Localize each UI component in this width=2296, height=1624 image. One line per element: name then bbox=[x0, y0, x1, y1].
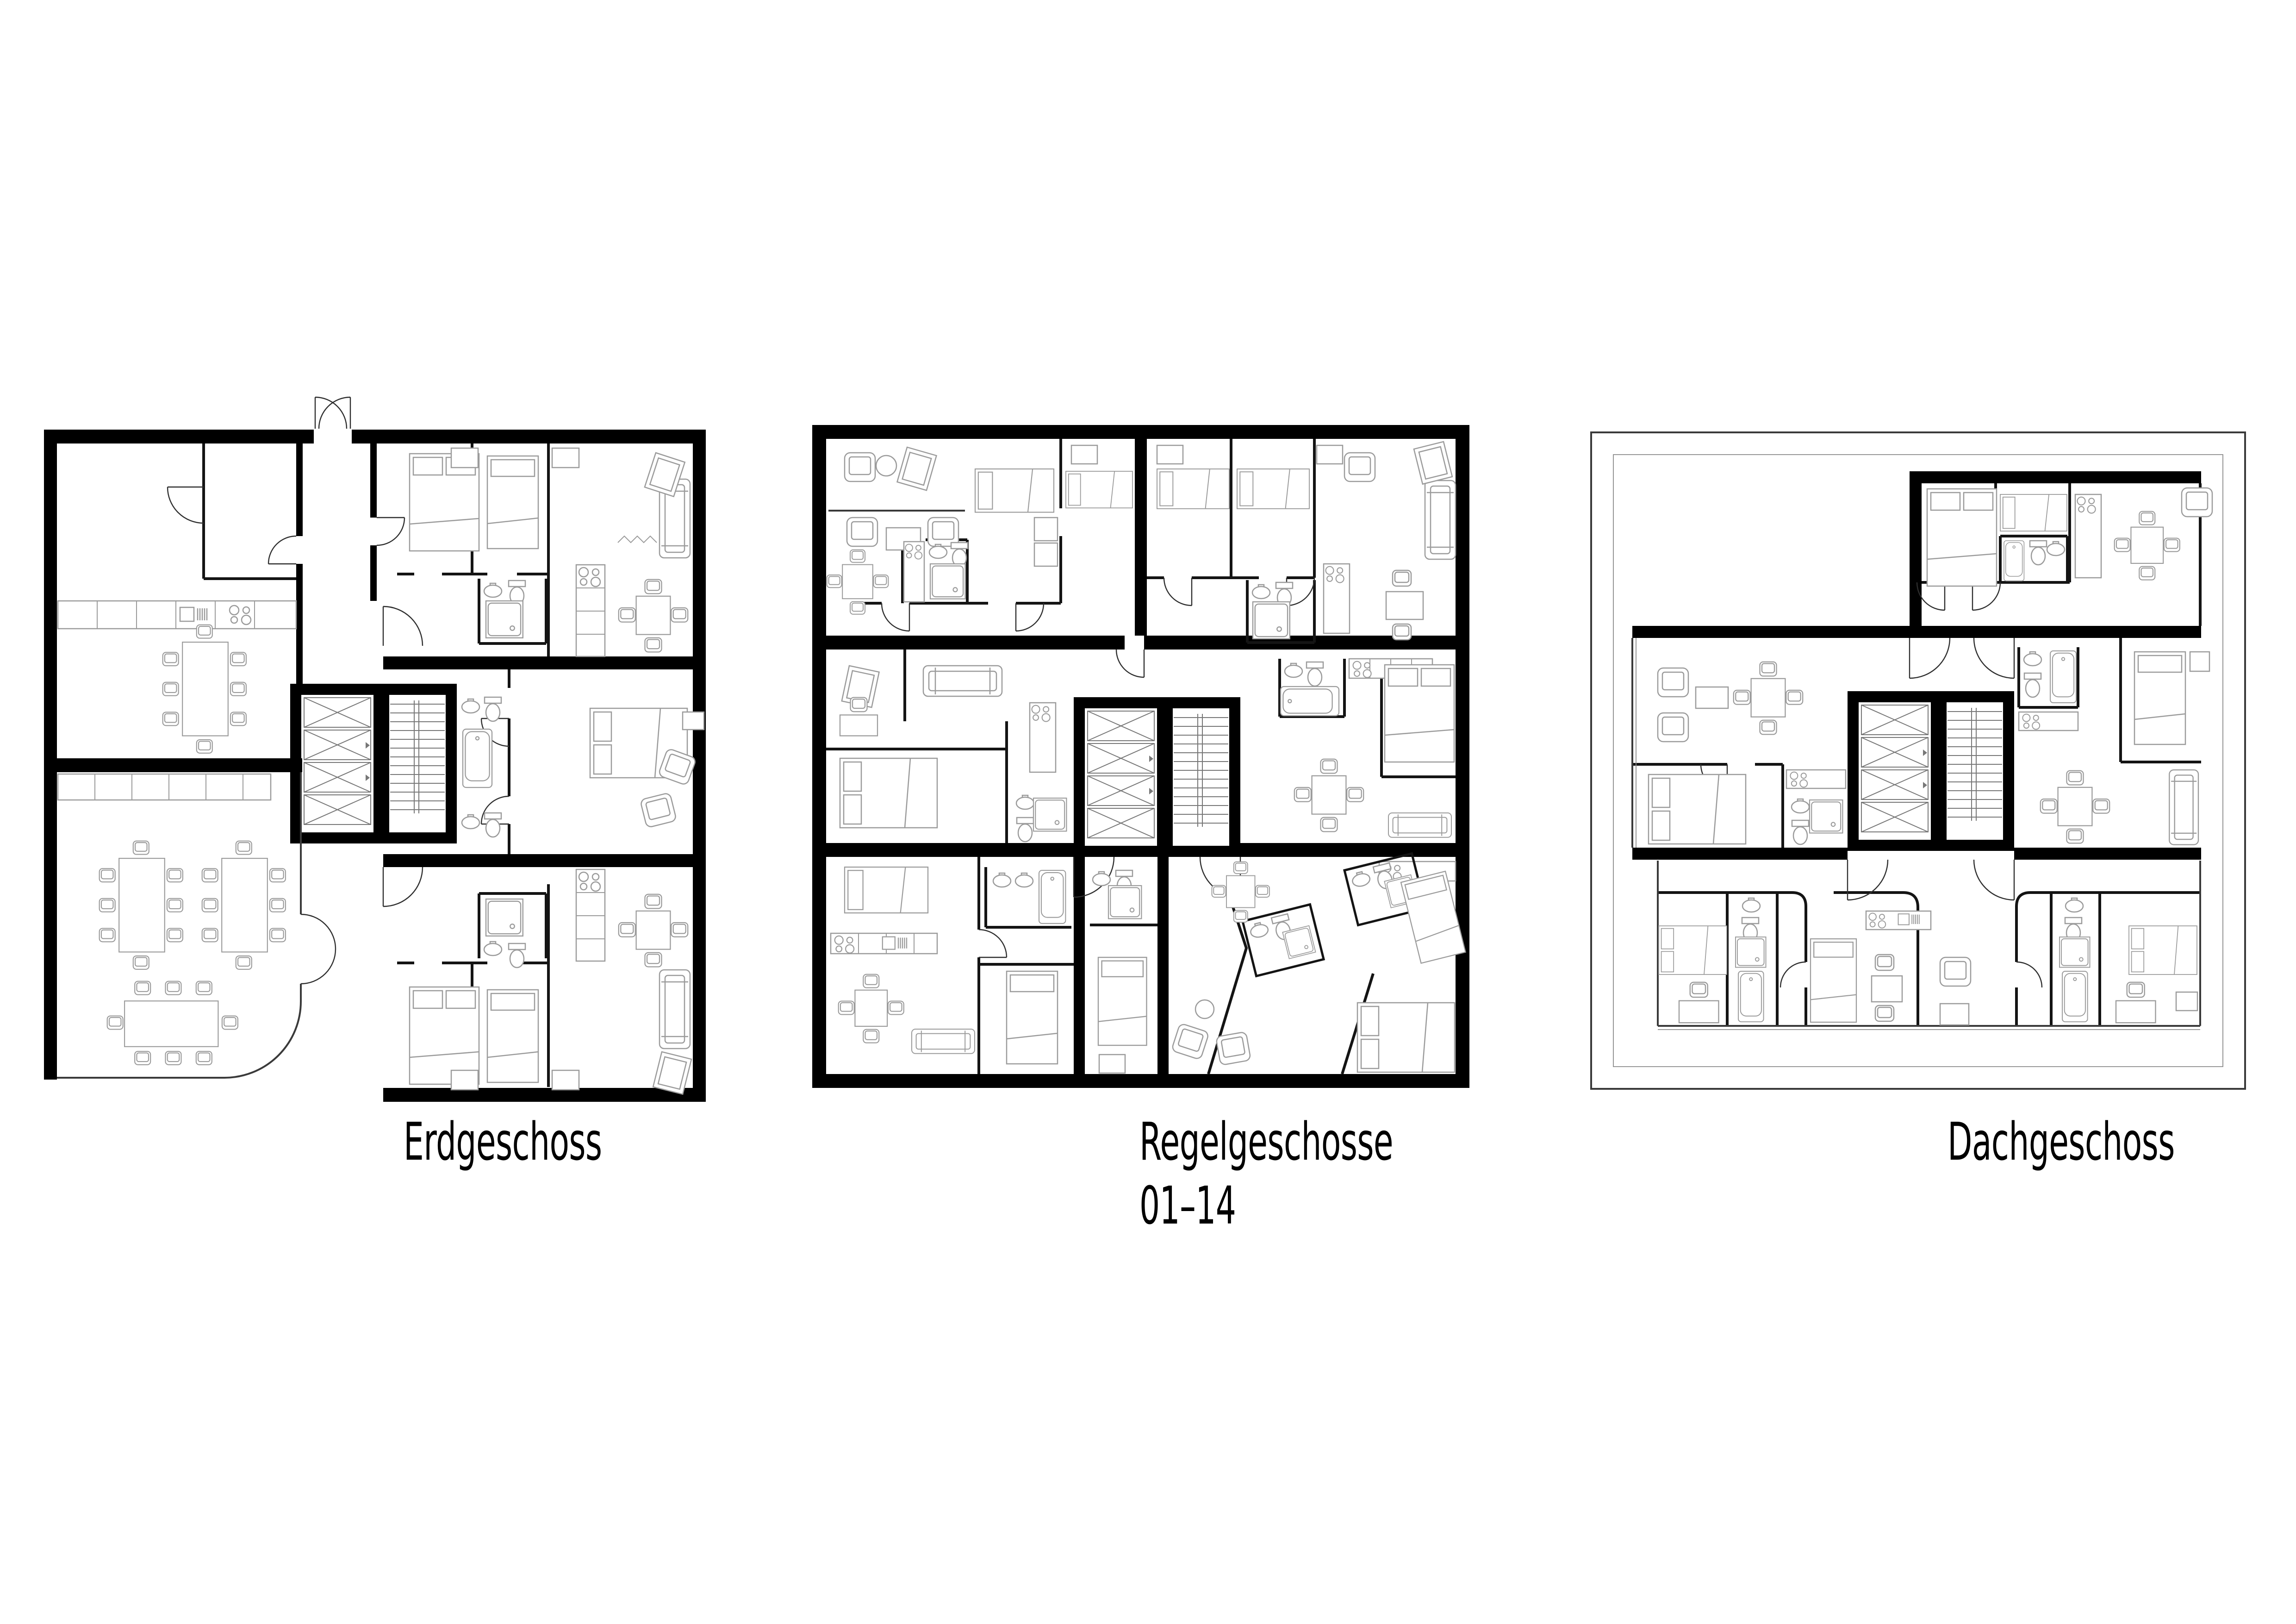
floorplan-regelgeschosse bbox=[812, 425, 1469, 1088]
caption-dachgeschoss: Dachgeschoss bbox=[1948, 1110, 2296, 1174]
elevator-core bbox=[1848, 691, 2014, 851]
caption-erdgeschoss: Erdgeschoss bbox=[404, 1110, 723, 1174]
furniture bbox=[1649, 488, 2212, 1025]
elevator-core bbox=[1074, 697, 1240, 857]
floorplan-dachgeschoss bbox=[1588, 430, 2248, 1092]
caption-regelgeschosse-line1: Regelgeschosse bbox=[1139, 1110, 1393, 1174]
caption-erdgeschoss-text: Erdgeschoss bbox=[404, 1110, 602, 1174]
caption-dachgeschoss-text: Dachgeschoss bbox=[1948, 1110, 2175, 1174]
floorplan-erdgeschoss bbox=[44, 389, 706, 1102]
caption-regelgeschosse: Regelgeschosse 01–14 bbox=[1139, 1110, 1549, 1238]
elevator-core bbox=[290, 684, 457, 843]
floor-plan-sheet: { "background": "#ffffff", "ink": { "wal… bbox=[0, 0, 2296, 1624]
caption-regelgeschosse-line2: 01–14 bbox=[1139, 1174, 1236, 1238]
